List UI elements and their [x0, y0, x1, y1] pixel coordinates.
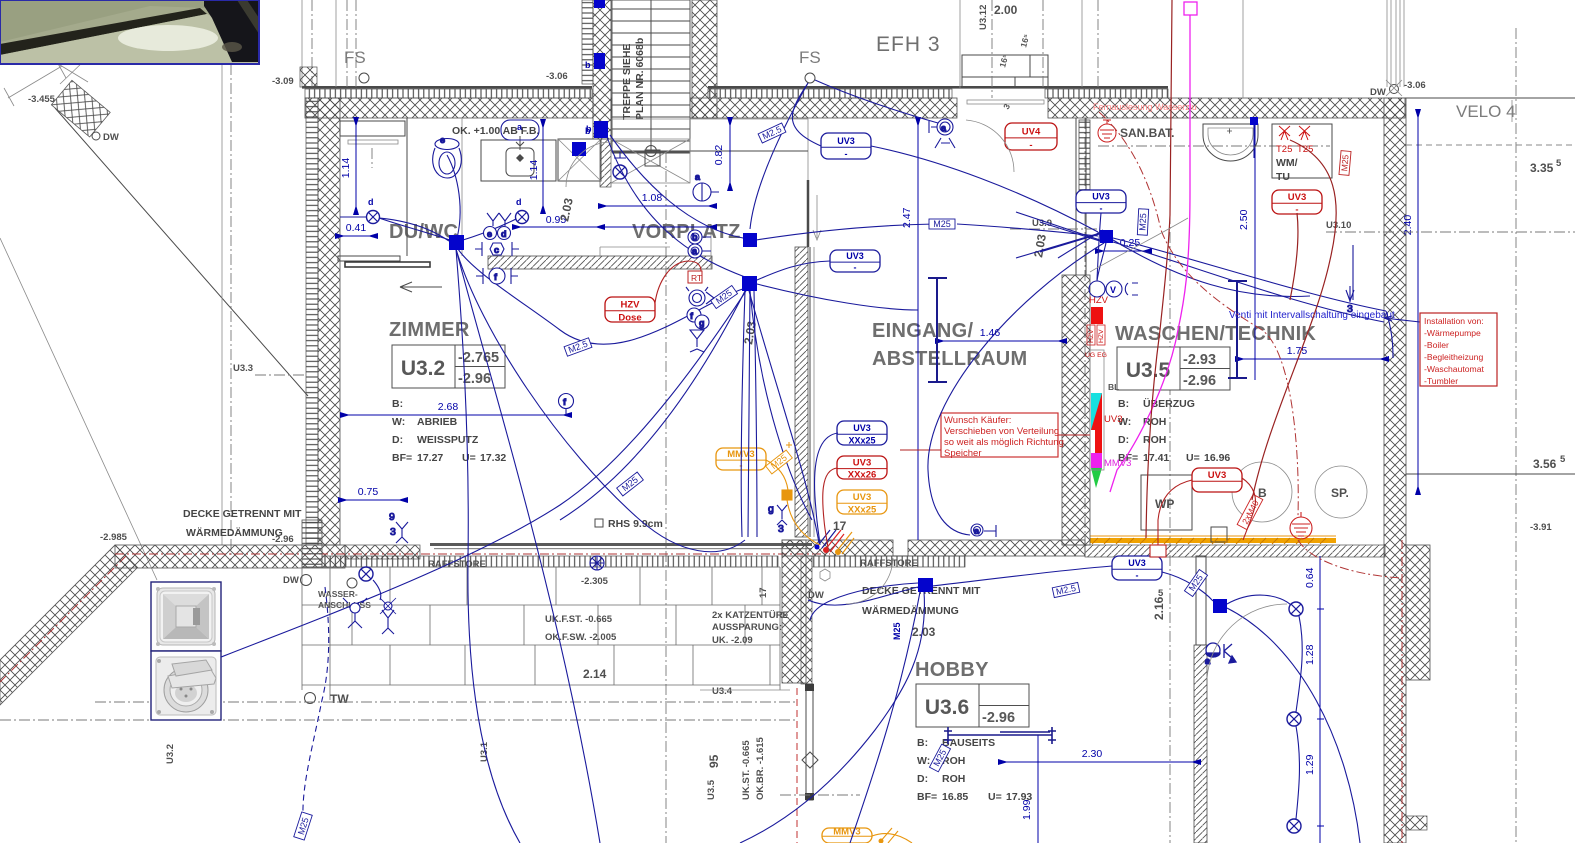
- svg-text:-3.455: -3.455: [28, 94, 56, 105]
- svg-text:U3.1: U3.1: [479, 741, 490, 762]
- svg-text:-3.09: -3.09: [272, 76, 294, 87]
- svg-text:ZIMMER: ZIMMER: [389, 319, 470, 341]
- svg-text:17: 17: [833, 519, 847, 533]
- svg-text:XXx25: XXx25: [848, 435, 875, 445]
- svg-text:XXx25: XXx25: [848, 504, 877, 515]
- svg-text:UV3: UV3: [837, 136, 855, 146]
- svg-text:UV3: UV3: [853, 423, 871, 433]
- svg-text:2.50: 2.50: [1238, 209, 1250, 230]
- svg-text:2.68: 2.68: [438, 401, 459, 413]
- svg-text:3: 3: [390, 526, 396, 538]
- svg-text:3.56: 3.56: [1533, 457, 1557, 471]
- svg-text:UV3: UV3: [1104, 414, 1122, 425]
- svg-text:17: 17: [758, 587, 769, 598]
- svg-text:D:: D:: [1118, 434, 1129, 446]
- svg-text:1.99: 1.99: [1021, 799, 1033, 820]
- svg-text:BF=: BF=: [917, 791, 937, 803]
- svg-text:U3.12: U3.12: [978, 5, 989, 30]
- svg-text:WÄRMEDÄMMUNG: WÄRMEDÄMMUNG: [862, 604, 959, 617]
- svg-text:so weit als möglich Richtung: so weit als möglich Richtung: [944, 437, 1064, 448]
- svg-text:W:: W:: [392, 416, 405, 428]
- svg-text:2.03: 2.03: [912, 625, 936, 639]
- svg-text:OK.F.SW. -2.005: OK.F.SW. -2.005: [545, 632, 617, 643]
- svg-text:b: b: [585, 60, 591, 70]
- svg-text:1.29: 1.29: [1304, 754, 1316, 775]
- svg-text:d: d: [516, 197, 522, 207]
- svg-text:UV3: UV3: [1288, 192, 1306, 203]
- svg-text:16.85: 16.85: [942, 791, 968, 803]
- svg-text:ROH: ROH: [942, 773, 965, 785]
- svg-text:TREPPE SIEHE: TREPPE SIEHE: [621, 44, 633, 120]
- svg-text:BF=: BF=: [392, 452, 412, 464]
- svg-text:EFH 3: EFH 3: [876, 33, 941, 56]
- svg-text:ABRIEB: ABRIEB: [417, 416, 458, 428]
- svg-text:0.82: 0.82: [713, 145, 725, 166]
- svg-text:2.30: 2.30: [1082, 748, 1103, 760]
- svg-text:B:: B:: [917, 737, 928, 749]
- svg-text:DW: DW: [808, 590, 824, 601]
- svg-text:0.64: 0.64: [1304, 567, 1316, 588]
- svg-text:HZV: HZV: [1088, 329, 1095, 343]
- svg-text:5: 5: [1560, 454, 1566, 465]
- svg-text:Fernauslesung Wasserzlu: Fernauslesung Wasserzlu: [1093, 102, 1197, 112]
- svg-text:PLAN NR. 6068b: PLAN NR. 6068b: [634, 38, 646, 120]
- svg-text:WM/: WM/: [1276, 157, 1298, 169]
- svg-text:HZV: HZV: [1098, 329, 1105, 343]
- svg-text:16.96: 16.96: [1204, 452, 1230, 464]
- svg-text:-Begleitheizung: -Begleitheizung: [1424, 352, 1483, 362]
- svg-text:B:: B:: [1118, 398, 1129, 410]
- svg-text:M25: M25: [1339, 154, 1350, 172]
- svg-text:MMV3: MMV3: [833, 826, 860, 837]
- svg-text:UV3: UV3: [1128, 558, 1146, 568]
- svg-text:UV3: UV3: [1092, 192, 1110, 202]
- svg-text:1.28: 1.28: [1304, 644, 1316, 665]
- svg-text:HOBBY: HOBBY: [915, 659, 989, 681]
- svg-text:SAN.BAT.: SAN.BAT.: [1120, 126, 1174, 140]
- svg-text:U3.5: U3.5: [1126, 359, 1171, 382]
- svg-text:2.14: 2.14: [583, 667, 607, 681]
- svg-text:17.41: 17.41: [1143, 452, 1169, 464]
- svg-text:-3.06: -3.06: [546, 71, 568, 82]
- svg-text:-: -: [1029, 140, 1032, 151]
- svg-text:DECKE GETRENNT MIT: DECKE GETRENNT MIT: [183, 508, 302, 520]
- svg-text:-Waschautomat: -Waschautomat: [1424, 364, 1484, 374]
- svg-text:-2.96: -2.96: [982, 710, 1015, 726]
- svg-text:RT: RT: [691, 273, 702, 283]
- svg-text:1.14: 1.14: [340, 158, 352, 179]
- svg-text:OK.BR. -1.615: OK.BR. -1.615: [755, 736, 766, 800]
- svg-text:-: -: [854, 262, 857, 272]
- svg-text:-: -: [1100, 203, 1103, 213]
- svg-text:DW: DW: [103, 132, 119, 143]
- svg-text:U3.5: U3.5: [706, 779, 717, 800]
- svg-text:U3.2: U3.2: [165, 744, 176, 764]
- svg-text:WASSER-: WASSER-: [318, 589, 358, 599]
- svg-text:D:: D:: [917, 773, 928, 785]
- svg-text:ÜBERZUG: ÜBERZUG: [1143, 397, 1195, 410]
- svg-text:UV4: UV4: [1022, 126, 1041, 137]
- svg-text:ABSTELLRAUM: ABSTELLRAUM: [872, 348, 1028, 370]
- svg-text:VELO 4: VELO 4: [1456, 102, 1516, 121]
- svg-text:M25: M25: [892, 622, 902, 640]
- svg-text:TW: TW: [330, 692, 349, 706]
- svg-text:BAUSEITS: BAUSEITS: [942, 737, 995, 749]
- svg-text:2.00: 2.00: [994, 3, 1018, 17]
- svg-text:WASCHEN/TECHNIK: WASCHEN/TECHNIK: [1115, 323, 1316, 345]
- svg-text:UV3: UV3: [1208, 470, 1226, 481]
- svg-text:g: g: [768, 503, 774, 515]
- svg-text:-2.96: -2.96: [458, 371, 491, 387]
- svg-text:FS: FS: [344, 48, 366, 67]
- svg-text:0.41: 0.41: [346, 222, 367, 234]
- svg-text:1.46: 1.46: [980, 327, 1001, 339]
- svg-text:V: V: [1110, 285, 1116, 295]
- svg-text:Wunsch Käufer:: Wunsch Käufer:: [944, 415, 1011, 426]
- svg-text:U3.3: U3.3: [233, 363, 253, 374]
- svg-text:W:: W:: [917, 755, 930, 767]
- svg-text:FS: FS: [799, 48, 821, 67]
- svg-text:UV3: UV3: [853, 492, 871, 503]
- svg-text:e: e: [440, 135, 445, 145]
- svg-text:UV3: UV3: [846, 251, 864, 261]
- svg-text:d: d: [501, 229, 507, 239]
- svg-text:U3.4: U3.4: [712, 686, 733, 697]
- svg-text:WÄRMEDÄMMUNG: WÄRMEDÄMMUNG: [186, 526, 283, 539]
- svg-text:DW: DW: [283, 575, 299, 586]
- svg-text:5: 5: [1158, 588, 1164, 599]
- svg-text:95: 95: [707, 754, 721, 768]
- svg-text:RAFFSTORE: RAFFSTORE: [860, 558, 918, 569]
- svg-text:BL: BL: [1108, 382, 1119, 392]
- svg-text:U3.10: U3.10: [1326, 220, 1351, 231]
- svg-text:1.75: 1.75: [1287, 345, 1308, 357]
- svg-text:-3.06: -3.06: [1404, 80, 1426, 91]
- svg-text:3: 3: [778, 523, 784, 535]
- svg-text:WEISSPUTZ: WEISSPUTZ: [417, 434, 479, 446]
- svg-text:UV3: UV3: [853, 458, 871, 469]
- svg-text:17.32: 17.32: [480, 452, 506, 464]
- svg-text:9: 9: [389, 511, 395, 523]
- svg-text:0.75: 0.75: [358, 486, 379, 498]
- svg-text:TU: TU: [1276, 171, 1290, 183]
- svg-text:-2.96: -2.96: [272, 534, 294, 545]
- svg-text:-2.93: -2.93: [1183, 352, 1216, 368]
- svg-text:SP.: SP.: [1331, 486, 1349, 500]
- svg-text:Speicher: Speicher: [944, 448, 982, 459]
- svg-text:3.35: 3.35: [1530, 161, 1554, 175]
- svg-text:-Tumbler: -Tumbler: [1424, 376, 1458, 386]
- svg-text:UK. -2.09: UK. -2.09: [712, 635, 753, 646]
- svg-text:5: 5: [1556, 158, 1562, 169]
- svg-text:VORPLATZ: VORPLATZ: [632, 221, 741, 243]
- svg-text:T25: T25: [1276, 144, 1292, 155]
- svg-text:Dose: Dose: [618, 312, 641, 323]
- svg-text:U=: U=: [988, 791, 1002, 803]
- svg-text:U3.2: U3.2: [401, 357, 445, 380]
- svg-text:17.27: 17.27: [417, 452, 443, 464]
- svg-text:e: e: [487, 229, 492, 239]
- svg-text:EINGANG/: EINGANG/: [872, 320, 973, 342]
- svg-text:OK. +1.00 AB F.B.: OK. +1.00 AB F.B.: [452, 125, 540, 137]
- svg-text:U3.6: U3.6: [925, 696, 969, 719]
- svg-text:1.14: 1.14: [528, 160, 540, 181]
- svg-text:g: g: [699, 318, 705, 328]
- svg-text:MMV3: MMV3: [1104, 458, 1131, 469]
- svg-text:M25: M25: [933, 219, 951, 229]
- svg-text:d: d: [368, 197, 374, 207]
- svg-text:HZV: HZV: [621, 300, 641, 311]
- svg-text:U=: U=: [462, 452, 476, 464]
- svg-text:-3.91: -3.91: [1530, 522, 1552, 533]
- svg-text:-2.96: -2.96: [1183, 373, 1216, 389]
- svg-text:AUSSPARUNG:: AUSSPARUNG:: [712, 622, 782, 633]
- svg-text:D:: D:: [392, 434, 403, 446]
- svg-text:2.16: 2.16: [1152, 596, 1166, 620]
- svg-text:RHS 9.9cm: RHS 9.9cm: [608, 518, 663, 530]
- svg-text:U=: U=: [1186, 452, 1200, 464]
- svg-text:-: -: [845, 149, 848, 159]
- svg-text:-: -: [1136, 570, 1139, 580]
- svg-text:-2.985: -2.985: [100, 532, 128, 543]
- svg-text:UG EG: UG EG: [1085, 352, 1107, 359]
- svg-text:DW: DW: [1370, 87, 1386, 98]
- svg-text:b: b: [692, 232, 698, 242]
- svg-text:UK.ST. -0.665: UK.ST. -0.665: [741, 740, 752, 800]
- svg-text:c: c: [494, 245, 499, 255]
- svg-text:3: 3: [1347, 303, 1353, 315]
- svg-text:Installation von:: Installation von:: [1424, 316, 1484, 326]
- svg-text:XXx26: XXx26: [848, 469, 877, 480]
- svg-text:ROH: ROH: [1143, 416, 1166, 428]
- svg-text:-Wärmepumpe: -Wärmepumpe: [1424, 328, 1481, 338]
- svg-text:-Boiler: -Boiler: [1424, 340, 1449, 350]
- svg-text:b: b: [586, 124, 592, 134]
- svg-text:ROH: ROH: [1143, 434, 1166, 446]
- svg-text:2x KATZENTÜRE: 2x KATZENTÜRE: [712, 610, 789, 621]
- svg-text:Verschieben von Verteilung: Verschieben von Verteilung: [944, 426, 1059, 437]
- svg-text:B:: B:: [392, 398, 403, 410]
- svg-text:-2.305: -2.305: [581, 576, 609, 587]
- svg-text:1.08: 1.08: [642, 192, 663, 204]
- svg-text:T25: T25: [1297, 144, 1313, 155]
- svg-text:M25: M25: [1137, 213, 1148, 231]
